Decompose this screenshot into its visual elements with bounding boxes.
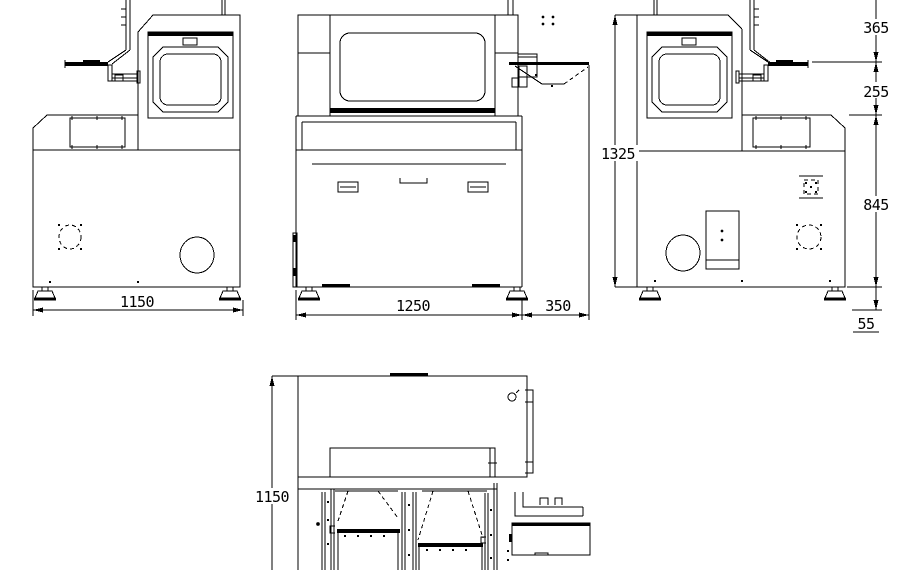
front-window	[340, 33, 485, 101]
dim-text-outfeed: 350	[545, 297, 571, 315]
arrow-right	[512, 313, 522, 318]
outfeed-conveyor	[509, 62, 589, 320]
dim-text-body: 845	[863, 196, 889, 214]
arrow-right	[579, 313, 589, 318]
arrow-left	[33, 308, 43, 313]
knockout-circle-dashed	[59, 225, 81, 249]
vent-panel	[70, 118, 125, 147]
dim-text-plan-depth: 1150	[255, 488, 290, 506]
foot	[298, 287, 320, 299]
screw-mark	[316, 522, 320, 526]
mid-console	[33, 115, 138, 150]
base-cabinet	[293, 116, 522, 287]
technical-drawing-canvas: 1150	[0, 0, 914, 570]
center-bracket	[400, 178, 427, 183]
front-view: 1250 350	[293, 0, 589, 320]
keyboard-tray	[65, 60, 140, 83]
dim-outfeed-width: 350	[522, 297, 589, 318]
door-frame	[148, 32, 233, 118]
rear-pole	[222, 0, 225, 15]
signal-pole	[508, 0, 513, 15]
base-cabinet	[637, 151, 845, 287]
arrow-up	[613, 15, 618, 25]
foot	[219, 287, 241, 299]
window-outer	[652, 47, 727, 112]
dim-front-width: 1250	[296, 290, 522, 320]
locating-pin	[508, 393, 516, 401]
arrow-right	[233, 308, 243, 313]
table-band	[296, 116, 522, 150]
left-side-view: 1150	[33, 0, 243, 316]
dim-left-width: 1150	[33, 290, 243, 316]
fan-cutout-circle	[180, 237, 214, 273]
chute-right	[418, 491, 487, 570]
inner-plate	[330, 448, 495, 477]
fan-cutout-circle	[666, 235, 700, 271]
foot	[506, 287, 528, 299]
drawing-page: 1150	[0, 0, 914, 570]
upper-cabinet	[138, 15, 240, 150]
outfeed-box	[509, 523, 590, 555]
control-pole	[750, 0, 772, 64]
right-side-view: 1325 365 255 845 55	[598, 0, 895, 333]
foot	[34, 287, 56, 299]
dim-text-seg-top: 365	[863, 19, 889, 37]
vent-grid-symbol	[799, 176, 823, 198]
front-pole	[654, 0, 657, 15]
right-rail-bracket	[525, 390, 533, 473]
dim-text-total-height: 1325	[601, 145, 635, 163]
knockout-circle-dashed	[797, 225, 821, 249]
arrow-up	[270, 376, 275, 386]
window-outer	[153, 47, 228, 112]
conveyor-rails	[316, 483, 497, 570]
label-plate	[682, 38, 696, 45]
outfeed-duct	[507, 492, 583, 561]
handle-right	[468, 182, 488, 192]
connector-panel	[706, 211, 739, 269]
dim-text-front-width: 1250	[396, 297, 431, 315]
upper-cabinet	[637, 15, 742, 151]
foot	[639, 287, 661, 299]
dim-chain-right: 365 255 845 55	[812, 0, 895, 333]
dim-plan-depth: 1150	[253, 376, 298, 570]
vent-panel	[753, 118, 810, 147]
dim-total-height: 1325	[598, 15, 639, 287]
arrow-left	[522, 313, 532, 318]
dim-text-left-width: 1150	[120, 293, 155, 311]
keyboard-tray	[736, 60, 808, 83]
mid-console	[742, 115, 845, 151]
base-cabinet	[33, 150, 240, 287]
foot	[824, 287, 846, 299]
arrow-down	[613, 277, 618, 287]
window-inner	[160, 54, 221, 105]
top-cabinet	[298, 15, 537, 116]
handle-left	[338, 182, 358, 192]
dim-text-foot: 55	[857, 315, 874, 333]
door-frame	[647, 32, 732, 118]
plan-view: 1150	[253, 373, 590, 570]
control-pole	[108, 0, 130, 64]
label-plate	[183, 38, 197, 45]
mounting-dots	[542, 16, 555, 26]
arrow-left	[296, 313, 306, 318]
window-inner	[659, 54, 720, 105]
dim-text-seg-upper: 255	[863, 83, 889, 101]
chute-left	[330, 491, 400, 570]
